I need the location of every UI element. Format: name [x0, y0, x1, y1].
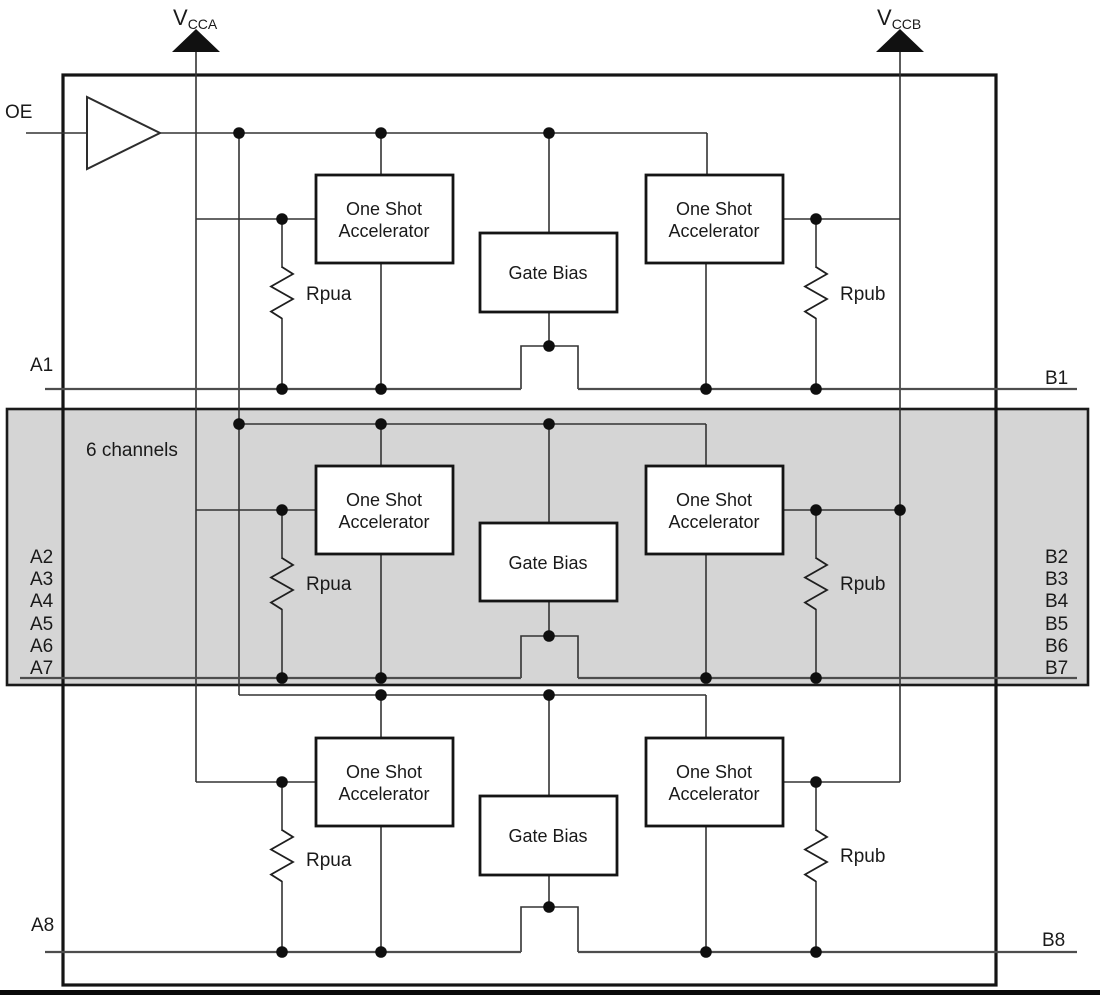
gate-bias-label: Gate Bias [508, 826, 587, 846]
gate-bias-label: Gate Bias [508, 263, 587, 283]
oe-buffer-icon [87, 97, 160, 169]
rpua-label: Rpua [306, 850, 352, 871]
port-b8-label: B8 [1042, 930, 1065, 951]
bottom-rule [0, 990, 1100, 995]
port-a4-label: A4 [30, 591, 54, 612]
port-b7-label: B7 [1045, 658, 1068, 679]
one-shot-accelerator-box [316, 738, 453, 826]
vcca-label: VCCA [173, 5, 218, 32]
one-shot-accelerator-box [646, 738, 783, 826]
channel-section-1: One ShotAccelerator One ShotAccelerator … [30, 127, 1077, 395]
vcca-arrow-icon [172, 29, 220, 52]
channel-section-3: One ShotAccelerator One ShotAccelerator … [31, 689, 1077, 958]
port-b4-label: B4 [1045, 591, 1069, 612]
rpub-label: Rpub [840, 284, 885, 305]
one-shot-accelerator-box [646, 466, 783, 554]
rpub-resistor-icon [805, 267, 827, 319]
port-a6-label: A6 [30, 636, 53, 657]
rpua-label: Rpua [306, 284, 352, 305]
port-a3-label: A3 [30, 569, 53, 590]
port-b6-label: B6 [1045, 636, 1068, 657]
vccb-label: VCCB [877, 5, 921, 32]
rpub-label: Rpub [840, 846, 885, 867]
port-a8-label: A8 [31, 915, 54, 936]
port-a7-label: A7 [30, 658, 53, 679]
port-a1-label: A1 [30, 355, 53, 376]
pass-transistor-icon [521, 346, 578, 389]
rpub-label: Rpub [840, 574, 885, 595]
port-b2-label: B2 [1045, 547, 1068, 568]
vccb-arrow-icon [876, 29, 924, 52]
port-b5-label: B5 [1045, 614, 1068, 635]
port-b1-label: B1 [1045, 368, 1068, 389]
six-channels-label: 6 channels [86, 440, 178, 461]
rpua-resistor-icon [271, 267, 293, 319]
rpub-resistor-icon [805, 830, 827, 882]
port-a5-label: A5 [30, 614, 53, 635]
one-shot-accelerator-box [646, 175, 783, 263]
one-shot-accelerator-box [316, 175, 453, 263]
port-a2-label: A2 [30, 547, 53, 568]
oe-label: OE [5, 102, 32, 123]
gate-bias-label: Gate Bias [508, 553, 587, 573]
block-diagram: VCCA VCCB OE One ShotAccelerator [0, 0, 1100, 995]
rpua-label: Rpua [306, 574, 352, 595]
one-shot-accelerator-box [316, 466, 453, 554]
rpua-resistor-icon [271, 830, 293, 882]
pass-transistor-icon [521, 907, 578, 952]
port-b3-label: B3 [1045, 569, 1068, 590]
